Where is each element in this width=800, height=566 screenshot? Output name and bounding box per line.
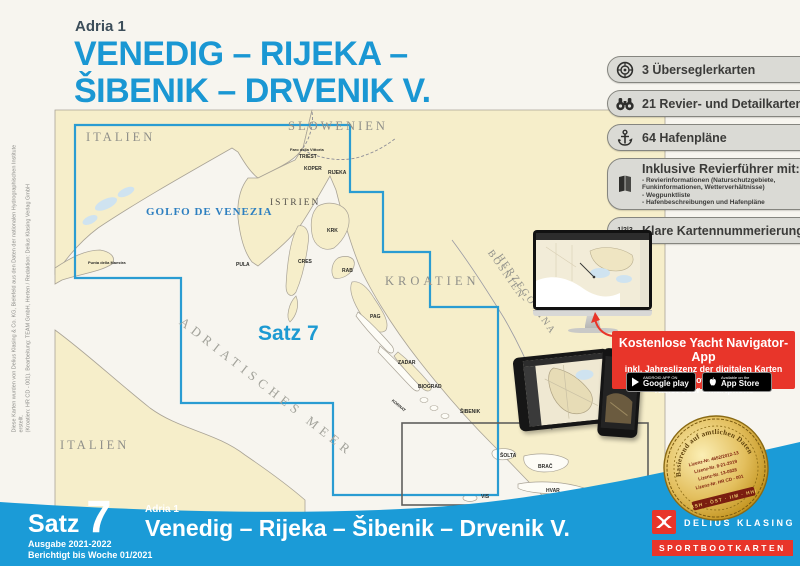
chart-set-cover: Diese Karten wurden von Delius Klasing &… xyxy=(0,0,800,566)
map-place-vis: VIS xyxy=(481,494,489,500)
map-place-punta: Punta della Maestra xyxy=(88,260,126,265)
feature-detail-4: - Hafenbeschreibungen und Hafenpläne xyxy=(642,199,800,207)
map-place-zadar: ZADAR xyxy=(398,360,416,366)
map-place-faro: Faro della Vittoria xyxy=(290,147,324,152)
feature-detail-2: Funkinformationen, Wetterverhältnisse) xyxy=(642,184,800,192)
feature-detail-3: - Wegpunktliste xyxy=(642,192,800,200)
google-badge-bottom: Google play xyxy=(643,380,689,388)
feature-label: 64 Hafenpläne xyxy=(642,131,727,145)
monitor-chin xyxy=(533,310,652,316)
map-place-rijeka: RIJEKA xyxy=(328,170,346,176)
feature-label: 3 Überseglerkarten xyxy=(642,63,755,77)
footer-title: Venedig – Rijeka – Šibenik – Drvenik V. xyxy=(145,515,570,542)
feature-label: 21 Revier- und Detailkarten xyxy=(642,97,800,111)
map-place-brac: BRAČ xyxy=(538,464,552,470)
binoculars-icon xyxy=(615,94,635,114)
monitor-stand xyxy=(585,316,601,328)
map-label-istrien: ISTRIEN xyxy=(270,198,320,208)
footer-set-number: 7 xyxy=(86,497,111,537)
app-promo-title: Kostenlose Yacht Navigator-App xyxy=(612,336,795,364)
footer-corrected: Berichtigt bis Woche 01/2021 xyxy=(28,550,152,560)
footer-series: Adria 1 xyxy=(145,504,179,515)
google-play-badge: ANDROID APP ON Google play xyxy=(626,372,696,392)
map-place-pula: PULA xyxy=(236,262,250,268)
feature-detail-1: - Revierinformationen (Naturschutzgebiet… xyxy=(642,177,800,185)
monitor-screen xyxy=(533,230,652,310)
play-triangle-icon xyxy=(631,377,640,387)
anchor-icon xyxy=(615,128,635,148)
map-place-hvar: HVAR xyxy=(546,488,560,494)
map-set-label: Satz 7 xyxy=(258,322,319,346)
map-label-italien-south: ITALIEN xyxy=(60,438,129,453)
map-label-italien-north: ITALIEN xyxy=(86,130,155,145)
map-place-sibenik: ŠIBENIK xyxy=(460,409,480,415)
apple-icon xyxy=(707,376,718,389)
feature-detail-charts: 21 Revier- und Detailkarten xyxy=(607,90,800,117)
feature-harbour-plans: 64 Hafenpläne xyxy=(607,124,800,151)
feature-label: Inklusive Revierführer mit: xyxy=(642,162,800,176)
map-label-kroatien: KROATIEN xyxy=(385,274,480,289)
feature-label: Klare Kartennummerierung xyxy=(642,224,800,238)
map-place-koper: KOPER xyxy=(304,166,322,172)
map-label-golfo: GOLFO DE VENEZIA xyxy=(146,206,272,218)
map-place-triest: TRIEST xyxy=(299,154,317,160)
desktop-monitor xyxy=(533,230,652,333)
map-place-solta: ŠOLTA xyxy=(500,453,516,459)
book-icon xyxy=(615,174,635,194)
feature-overview-charts: 3 Überseglerkarten xyxy=(607,56,800,83)
map-place-biograd: BIOGRAD xyxy=(418,384,442,390)
map-place-rab: RAB xyxy=(342,268,353,274)
compass-chart-icon xyxy=(615,60,635,80)
footer-set: Satz 7 xyxy=(28,497,111,539)
product-line-badge: SPORTBOOTKARTEN xyxy=(652,540,793,556)
map-label-slowenien: SLOWENIEN xyxy=(288,119,388,134)
feature-guide: Inklusive Revierführer mit: - Revierinfo… xyxy=(607,158,800,210)
footer-set-word: Satz xyxy=(28,510,79,539)
map-place-krk: KRK xyxy=(327,228,338,234)
app-store-badge: Available on the App Store xyxy=(702,372,772,392)
map-place-pag: PAG xyxy=(370,314,380,320)
apple-badge-bottom: App Store xyxy=(721,380,759,388)
map-place-cres: CRES xyxy=(298,259,312,265)
monitor-base xyxy=(568,328,618,333)
footer-edition: Ausgabe 2021-2022 xyxy=(28,539,112,549)
